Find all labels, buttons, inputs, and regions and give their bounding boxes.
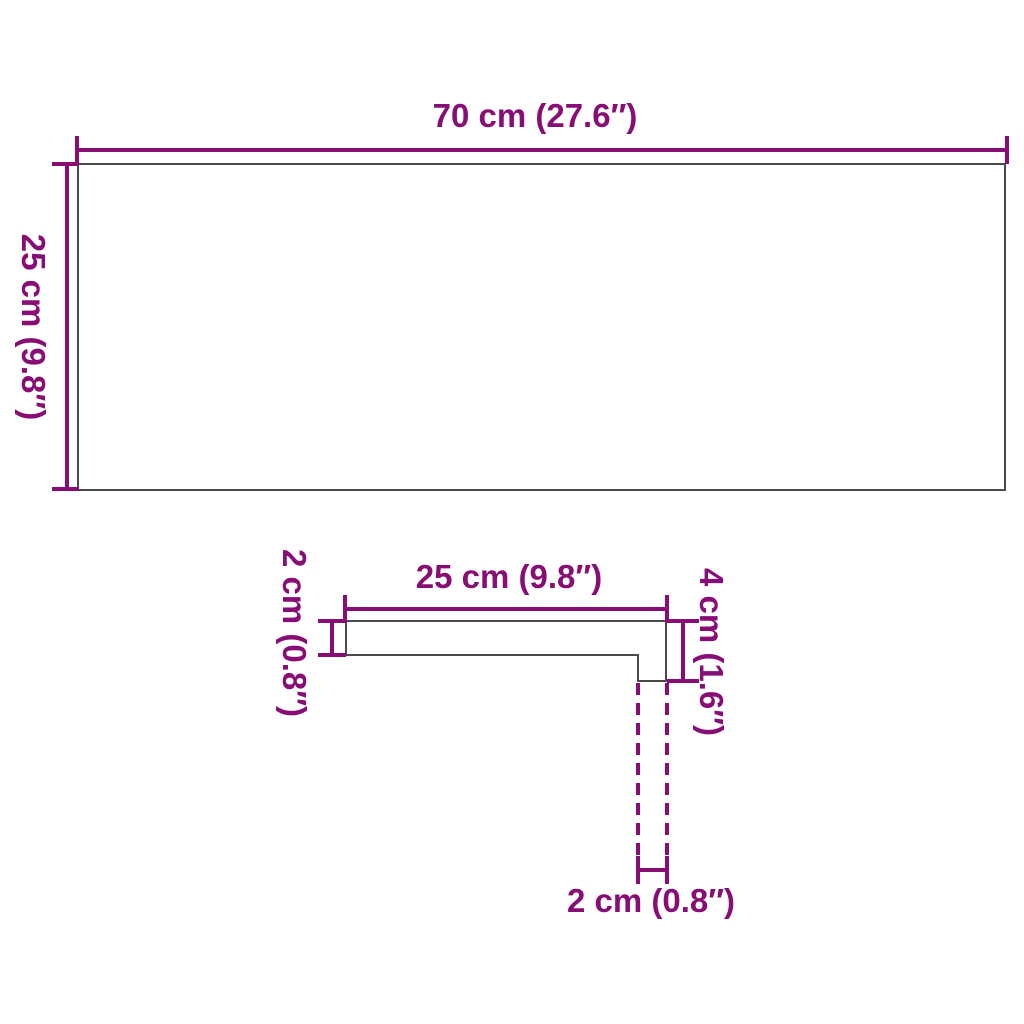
dimension-diagram: 70 cm (27.6″) 25 cm (9.8″) 25 cm (9.8″) … [0, 0, 1024, 1024]
diagram-canvas [0, 0, 1024, 1024]
top-width-label: 70 cm (27.6″) [433, 97, 638, 135]
profile-width-label: 25 cm (9.8″) [416, 558, 602, 596]
nose-height-label: 4 cm (1.6″) [692, 568, 730, 736]
profile-thickness-label: 2 cm (0.8″) [275, 549, 313, 717]
top-view-panel [78, 164, 1005, 490]
nose-width-label: 2 cm (0.8″) [567, 882, 735, 920]
left-height-label: 25 cm (9.8″) [14, 234, 52, 420]
profile-outline [346, 621, 666, 681]
